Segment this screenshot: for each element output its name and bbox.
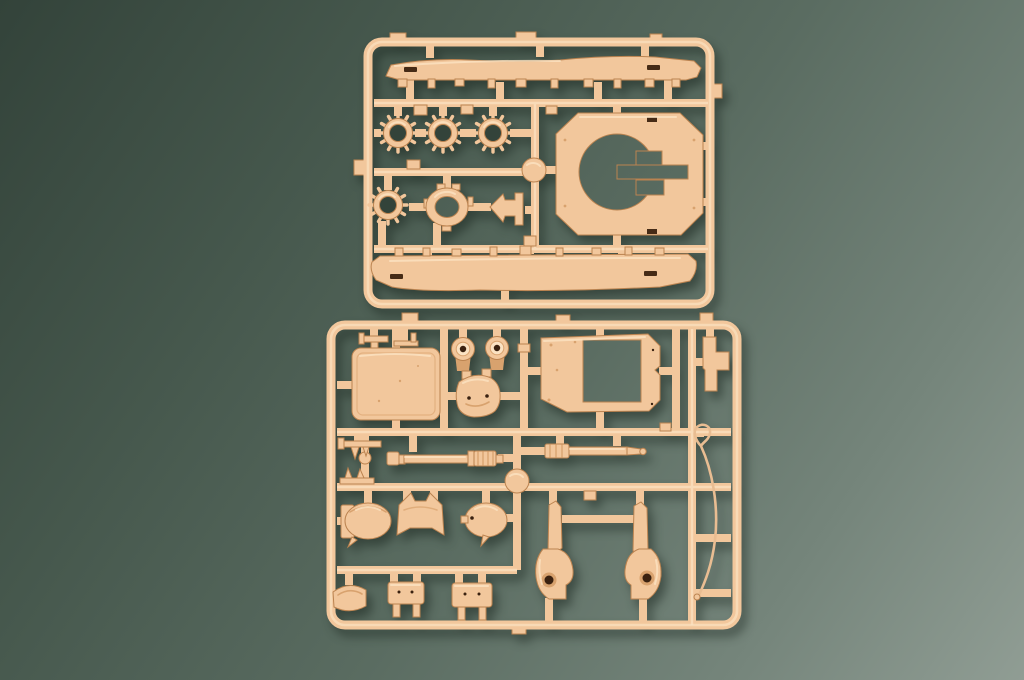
runner-tab: [407, 160, 420, 169]
ring-tab: [468, 197, 473, 206]
runner-tab: [414, 105, 427, 115]
runner-tab: [584, 491, 596, 500]
casemate-opening: [583, 340, 641, 402]
part-turret-ring-plate: [556, 113, 703, 235]
runner-knob: [505, 469, 529, 493]
hull-slot: [647, 65, 660, 70]
photo-canvas: [0, 0, 1024, 680]
runner-tab: [546, 106, 557, 114]
hull-slot: [644, 271, 657, 276]
cable-end: [694, 594, 700, 600]
gate-tab: [354, 160, 364, 175]
hull-slot: [390, 274, 403, 279]
plate-notch: [636, 151, 662, 165]
part-casemate-frame: [541, 334, 660, 412]
plate-channel: [617, 165, 688, 179]
plate-slot: [647, 229, 657, 234]
runner-tab: [660, 423, 671, 431]
part-curved-clamp: [333, 585, 366, 610]
part-roof-panel: [352, 348, 440, 420]
runner-knob: [522, 158, 546, 182]
sprue-top: [354, 32, 722, 304]
plate-notch: [636, 180, 664, 195]
model-kit-sprues-photo: [0, 0, 1024, 680]
runner-tab: [461, 105, 473, 114]
runner-tab: [518, 344, 530, 352]
hull-slot: [404, 67, 417, 72]
runner-tab: [524, 236, 536, 246]
ring-tab: [442, 226, 451, 231]
